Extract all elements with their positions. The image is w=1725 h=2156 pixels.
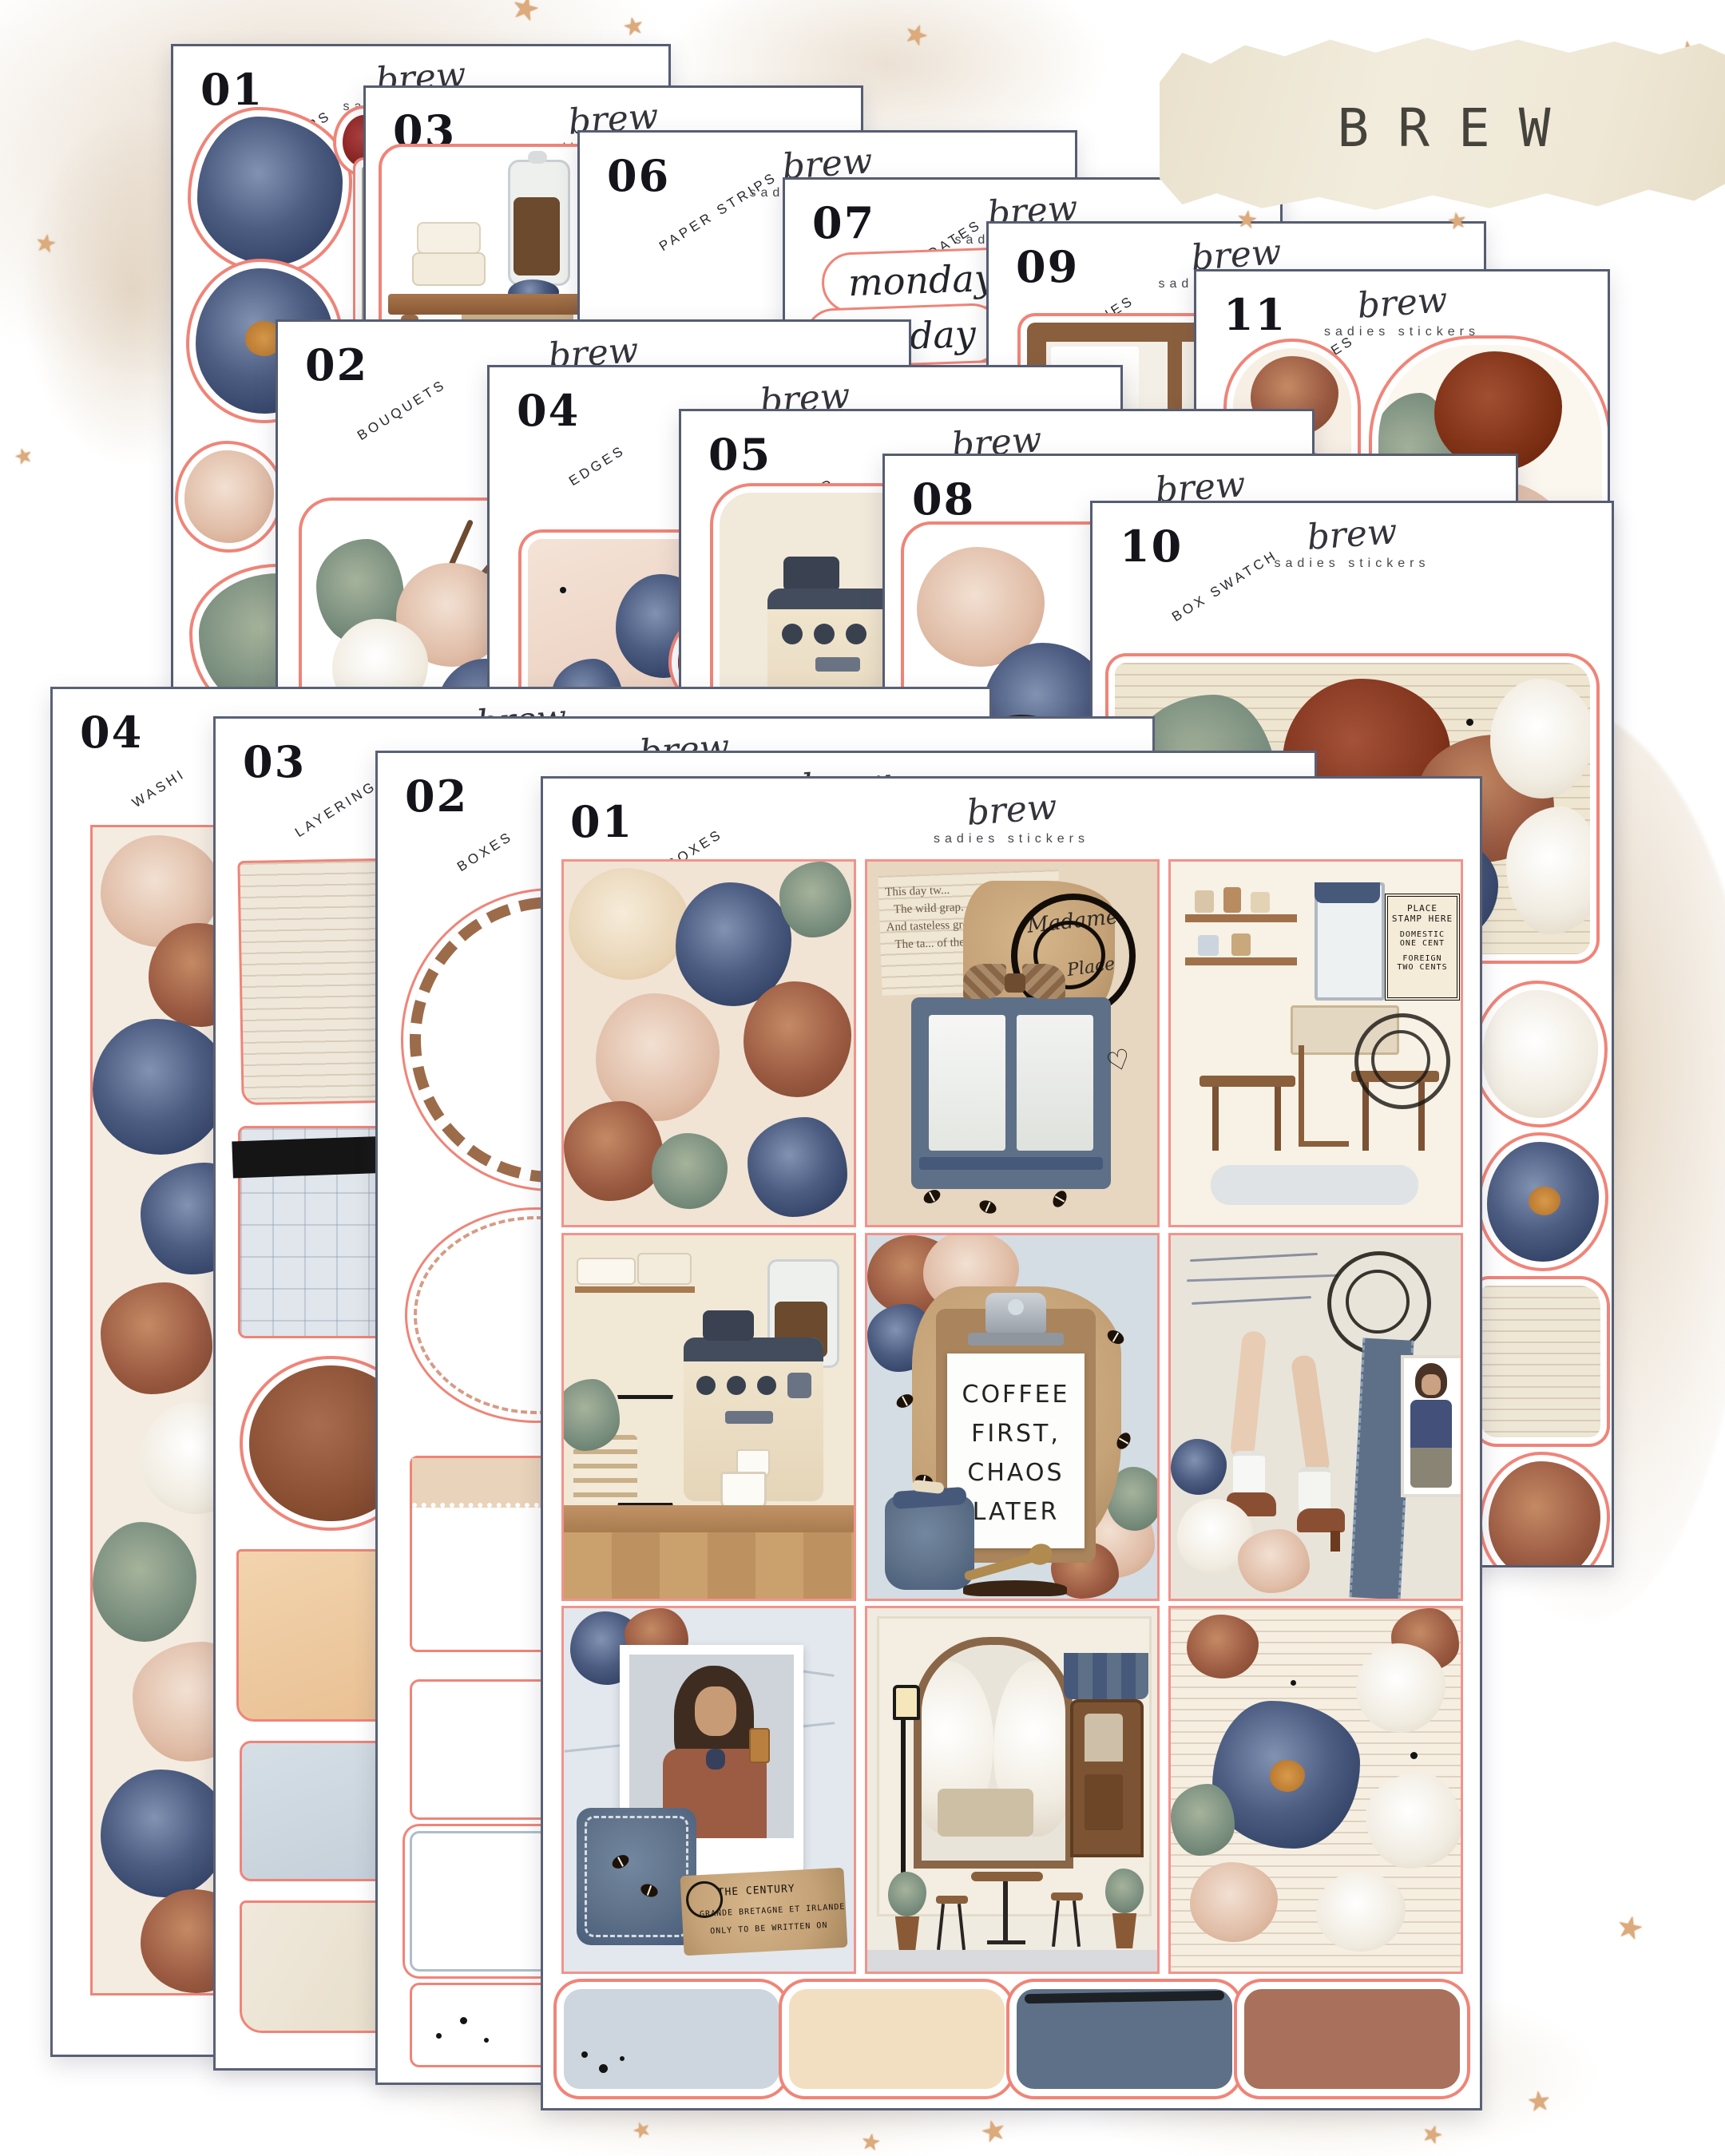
star-icon: ★ bbox=[1525, 2085, 1552, 2119]
full-box-polaroid-girl: THE CENTURY GRANDE BRETAGNE ET IRLANDE O… bbox=[561, 1606, 856, 1974]
bistro-table bbox=[963, 1872, 1051, 1952]
swatch-light-blue bbox=[564, 1989, 779, 2089]
full-box-cafe-exterior bbox=[865, 1606, 1160, 1974]
star-icon: ★ bbox=[1445, 206, 1469, 236]
star-icon: ★ bbox=[1613, 1908, 1648, 1948]
sheet-number: 05 bbox=[708, 429, 771, 480]
sheet-01-full-boxes: 01 FULL BOXES brew sadies stickers This … bbox=[541, 776, 1482, 2110]
denim-tag bbox=[577, 1808, 696, 1945]
sheet-number: 04 bbox=[517, 385, 580, 436]
bean-pile bbox=[963, 1580, 1067, 1596]
window bbox=[911, 997, 1111, 1189]
lantern bbox=[888, 1685, 920, 1885]
shelf bbox=[1185, 914, 1297, 922]
postmark-ring bbox=[1354, 1013, 1450, 1109]
swatch-cream bbox=[789, 1989, 1005, 2089]
sheet-label: EDGES bbox=[566, 442, 629, 489]
glass-jar-beans bbox=[508, 160, 570, 286]
table bbox=[1200, 1076, 1295, 1087]
shelf bbox=[1185, 957, 1297, 965]
swatch-slate-blue bbox=[1017, 1989, 1232, 2089]
sheet-label: WASHI bbox=[129, 766, 188, 811]
navy-pom-flower-sticker bbox=[197, 117, 343, 265]
kit-title: BREW bbox=[1160, 97, 1725, 159]
full-box-clipboard: COFFEE FIRST, CHAOS LATER bbox=[865, 1233, 1160, 1601]
door bbox=[1070, 1699, 1144, 1857]
sheet-number: 01 bbox=[570, 796, 633, 847]
rug bbox=[1211, 1165, 1418, 1205]
rust-rose-sticker bbox=[1489, 1461, 1600, 1567]
photo-woman bbox=[1401, 1355, 1463, 1497]
brand-header: brew sadies stickers bbox=[828, 790, 1196, 846]
clip bbox=[985, 1293, 1046, 1333]
sheet-number: 04 bbox=[80, 707, 143, 758]
sheet-number: 02 bbox=[305, 339, 368, 390]
cafe-window bbox=[1315, 882, 1385, 1001]
navy-daisy-sticker bbox=[1487, 1142, 1599, 1262]
blush-rose-sticker bbox=[184, 450, 274, 543]
full-box-coffee-station bbox=[561, 1233, 856, 1601]
full-box-cafe-interior: PLACE STAMP HERE DOMESTIC ONE CENT FOREI… bbox=[1168, 859, 1463, 1227]
full-box-window: This day tw... The wild grap. And tastel… bbox=[865, 859, 1160, 1227]
topiary bbox=[1100, 1869, 1148, 1956]
swatch-terracotta bbox=[1244, 1989, 1460, 2089]
white-flower-sticker bbox=[1482, 990, 1598, 1118]
sidewalk bbox=[867, 1950, 1157, 1972]
stamp-frame: PLACE STAMP HERE DOMESTIC ONE CENT FOREI… bbox=[1385, 894, 1460, 1001]
script-paper-piece bbox=[1481, 1286, 1600, 1437]
torn-paper-title: BREW bbox=[1160, 30, 1725, 216]
kraft-stamp-label: THE CENTURY GRANDE BRETAGNE ET IRLANDE O… bbox=[680, 1868, 848, 1956]
full-box-floral-2 bbox=[1168, 1606, 1463, 1974]
star-icon: ★ bbox=[1235, 204, 1260, 235]
counter-front bbox=[564, 1532, 854, 1599]
stool bbox=[1049, 1892, 1085, 1948]
arch-window bbox=[914, 1637, 1073, 1869]
sheet-number: 02 bbox=[405, 771, 468, 822]
cup-stack bbox=[412, 222, 486, 283]
sheet-number: 03 bbox=[243, 736, 306, 787]
awning bbox=[1064, 1653, 1148, 1699]
counter-top bbox=[564, 1505, 854, 1532]
brew-sticker-kit-collage: { "title": "BREW", "brand": {"script": "… bbox=[0, 0, 1725, 2156]
star-icon: ★ bbox=[859, 2127, 882, 2156]
stool bbox=[934, 1896, 970, 1952]
plaid-bow bbox=[963, 956, 1067, 1012]
full-box-fashion bbox=[1168, 1233, 1463, 1601]
coffee-bag bbox=[885, 1496, 974, 1590]
brand-header: brew sadies stickers bbox=[1219, 283, 1586, 339]
sheet-number: 08 bbox=[912, 474, 975, 525]
sheet-label: BOXES bbox=[454, 828, 516, 875]
topiary bbox=[883, 1872, 931, 1960]
full-box-floral-1 bbox=[561, 859, 856, 1227]
chair bbox=[1299, 1045, 1349, 1147]
brand-header: brew sadies stickers bbox=[1168, 514, 1536, 571]
